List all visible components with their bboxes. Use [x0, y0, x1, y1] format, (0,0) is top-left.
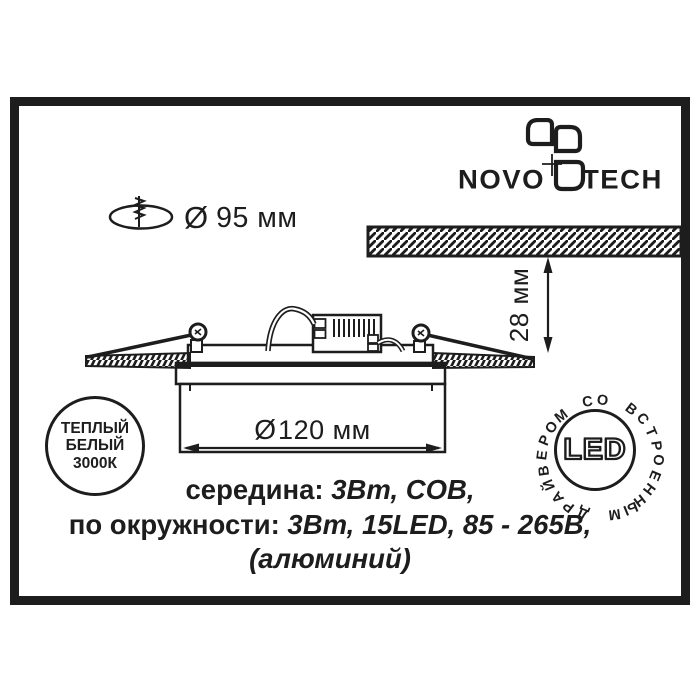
ceiling-section-icon: [368, 227, 681, 256]
driver-box: [313, 315, 381, 352]
technical-drawing: [0, 0, 700, 700]
mounting-hole-icon: [110, 196, 172, 229]
spec-line-1: середина: 3Вт, COB,: [20, 473, 640, 508]
badge-line: 3000К: [73, 455, 117, 473]
ring-char: [612, 396, 622, 412]
ring-char: О: [596, 392, 609, 409]
fixture-flange: [188, 345, 433, 363]
hole-diameter-label: Ø 95 мм: [184, 200, 297, 236]
screw-icon: [135, 196, 144, 227]
badge-line: БЕЛЫЙ: [66, 437, 125, 455]
spec-line-3: (алюминий): [20, 542, 640, 577]
led-label: LED: [564, 433, 627, 467]
product-spec-sheet: NOVO TECH: [0, 0, 700, 700]
diameter-symbol: Ø: [184, 200, 208, 236]
specification-text: середина: 3Вт, COB, по окружности: 3Вт, …: [20, 473, 680, 577]
fixture-diameter-label: Ø 120 мм: [180, 414, 445, 446]
depth-dimension-label: 28 мм: [504, 257, 532, 353]
badge-line: ТЕПЛЫЙ: [61, 420, 129, 438]
ring-char: Р: [647, 440, 664, 452]
ring-char: О: [649, 453, 666, 466]
spec-line-2: по окружности: 3Вт, 15LED, 85 - 265В,: [20, 508, 640, 543]
ring-char: С: [633, 410, 652, 428]
depth-dimension-arrow: [544, 257, 553, 353]
ring-char: Е: [534, 450, 551, 462]
diameter-symbol: Ø: [254, 414, 276, 446]
